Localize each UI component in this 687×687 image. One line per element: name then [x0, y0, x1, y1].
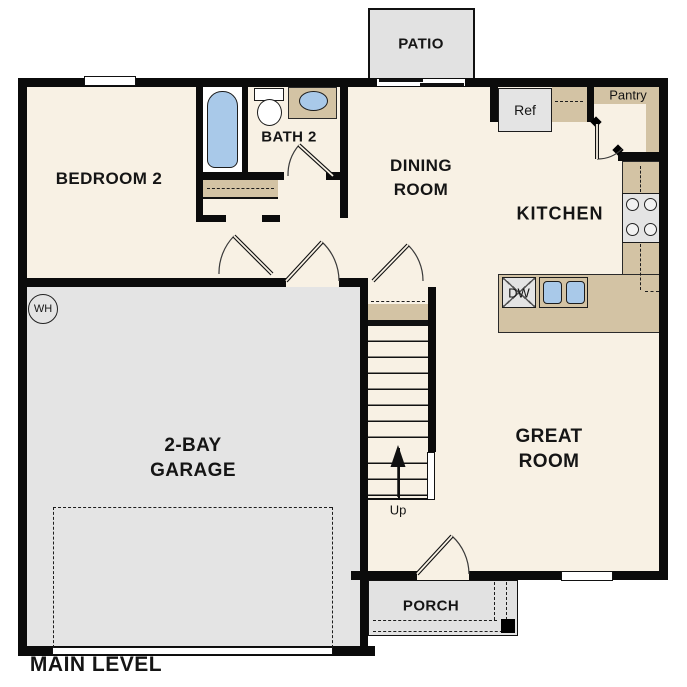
closet-shelf-edge [203, 197, 278, 199]
stair-closet-dash [371, 301, 425, 302]
burner-icon [626, 223, 639, 236]
wall-bath-bottom [196, 172, 284, 180]
wall-garage-right [360, 287, 368, 646]
counter-dash-1 [640, 166, 641, 192]
ref-label: Ref [514, 102, 536, 118]
patio-label: PATIO [398, 36, 444, 53]
cabinet-dash [555, 101, 583, 102]
counter-dash-2 [640, 244, 641, 290]
closet-rod-dash [207, 188, 274, 189]
wall-left [18, 78, 27, 656]
dining-room-label-line1: DINING [390, 156, 452, 176]
stair-lower-left [368, 448, 398, 500]
counter-by-ref [552, 87, 587, 122]
kitchen-label: KITCHEN [517, 204, 604, 225]
porch-dash-right-1 [494, 582, 495, 620]
porch-dash-edge [373, 631, 513, 632]
stair-upper-flight [368, 326, 428, 448]
bathtub [207, 91, 238, 168]
wall-pantry-bottom [618, 152, 660, 161]
stair-closet-shelf [368, 304, 428, 320]
porch-dash-bottom [373, 620, 497, 621]
garage-label-line2: GARAGE [150, 460, 236, 482]
wall-dining-kitchen-stub [490, 87, 498, 122]
bedroom-window [84, 76, 136, 86]
sink-basin-right [566, 281, 585, 304]
wall-closet-bottom-right [262, 215, 280, 222]
burner-icon [626, 198, 639, 211]
floor-plan: PATIO BEDROOM 2 BATH 2 DINING ROOM KITCH… [0, 0, 687, 687]
bath-sink [299, 91, 328, 111]
pantry-right-shelf [646, 104, 660, 152]
wh-label: WH [34, 303, 52, 315]
sink-basin-left [543, 281, 562, 304]
patio-slider-panel-2 [420, 83, 464, 86]
wall-stair-right [428, 287, 436, 452]
toilet-bowl [257, 99, 282, 126]
stair-railing [427, 452, 435, 500]
plan-title: MAIN LEVEL [30, 653, 162, 677]
burner-icon [644, 223, 657, 236]
dining-room-label-line2: ROOM [394, 180, 448, 200]
porch-label: PORCH [403, 598, 459, 615]
wall-closet-bottom-left [196, 215, 226, 222]
great-room-window [561, 571, 613, 581]
bath2-label: BATH 2 [261, 129, 316, 146]
stair-bottom-edge [368, 498, 428, 500]
front-door-opening [417, 571, 469, 580]
garage-door-track-top [53, 507, 332, 508]
wall-right [659, 78, 668, 580]
wall-tub-right [242, 87, 248, 172]
dw-label: DW [508, 286, 530, 301]
counter-dash-3 [645, 291, 659, 292]
wall-hall-dining [340, 150, 348, 218]
burner-icon [644, 198, 657, 211]
garage-door-track-left [53, 507, 54, 648]
great-room-label-line1: GREAT [515, 426, 582, 448]
patio-slider-panel-1 [379, 79, 423, 82]
garage-door-opening [286, 278, 339, 287]
wall-bath-right [340, 87, 348, 150]
stair-lower-right [398, 448, 428, 500]
pantry-label: Pantry [609, 88, 647, 103]
garage-door-track-right [332, 507, 333, 648]
wall-bedroom-bath [196, 87, 203, 172]
great-room-label-line2: ROOM [519, 451, 580, 473]
stair-closet-opening [373, 278, 423, 287]
garage-label-line1: 2-BAY [164, 435, 221, 457]
wall-bottom-great-room [351, 571, 668, 580]
bedroom2-label: BEDROOM 2 [56, 169, 163, 189]
porch-dash-right-2 [506, 582, 507, 620]
wall-pantry-left [587, 87, 594, 122]
up-label: Up [390, 503, 407, 518]
porch-post [501, 619, 515, 633]
